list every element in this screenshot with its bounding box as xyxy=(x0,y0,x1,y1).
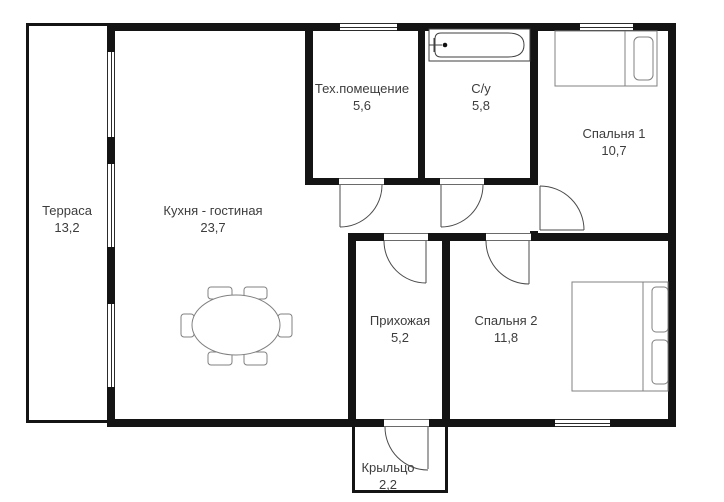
room-name: С/у xyxy=(471,80,491,97)
plan-symbols-layer xyxy=(0,0,724,502)
room-name: Терраса xyxy=(42,202,92,219)
bathtub-basin xyxy=(435,33,524,57)
door-arc-tech xyxy=(340,185,382,227)
floor-plan: Терраса 13,2 Кухня - гостиная 23,7 Тех.п… xyxy=(0,0,724,502)
room-name: Тех.помещение xyxy=(315,80,409,97)
door-arc-bath xyxy=(441,185,483,227)
bed-double-pillow-1 xyxy=(652,287,668,332)
room-area: 5,6 xyxy=(315,97,409,114)
room-area: 10,7 xyxy=(582,142,645,159)
room-label-bath: С/у 5,8 xyxy=(471,80,491,114)
door-arc-bedroom1 xyxy=(540,186,584,230)
room-label-kitchen: Кухня - гостиная 23,7 xyxy=(163,202,262,236)
room-name: Крыльцо xyxy=(361,459,414,476)
bathtub-drain-dot xyxy=(443,43,448,48)
room-name: Кухня - гостиная xyxy=(163,202,262,219)
room-label-bedroom2: Спальня 2 11,8 xyxy=(474,312,537,346)
room-area: 23,7 xyxy=(163,219,262,236)
room-area: 11,8 xyxy=(474,329,537,346)
room-name: Спальня 1 xyxy=(582,125,645,142)
door-arc-hallway xyxy=(384,241,426,283)
bed-single xyxy=(555,31,657,86)
room-label-hallway: Прихожая 5,2 xyxy=(370,312,430,346)
room-label-tech: Тех.помещение 5,6 xyxy=(315,80,409,114)
room-area: 5,2 xyxy=(370,329,430,346)
room-area: 5,8 xyxy=(471,97,491,114)
dining-set xyxy=(181,287,292,365)
bed-double-pillow-2 xyxy=(652,340,668,384)
room-name: Прихожая xyxy=(370,312,430,329)
room-area: 13,2 xyxy=(42,219,92,236)
door-arc-bedroom2 xyxy=(486,241,529,284)
room-label-terrace: Терраса 13,2 xyxy=(42,202,92,236)
room-name: Спальня 2 xyxy=(474,312,537,329)
dining-table xyxy=(192,295,280,355)
room-area: 2,2 xyxy=(361,476,414,493)
room-label-bedroom1: Спальня 1 10,7 xyxy=(582,125,645,159)
bed-double xyxy=(572,282,668,391)
room-label-porch: Крыльцо 2,2 xyxy=(361,459,414,493)
bed-single-pillow xyxy=(634,37,653,80)
bathtub xyxy=(429,29,530,61)
